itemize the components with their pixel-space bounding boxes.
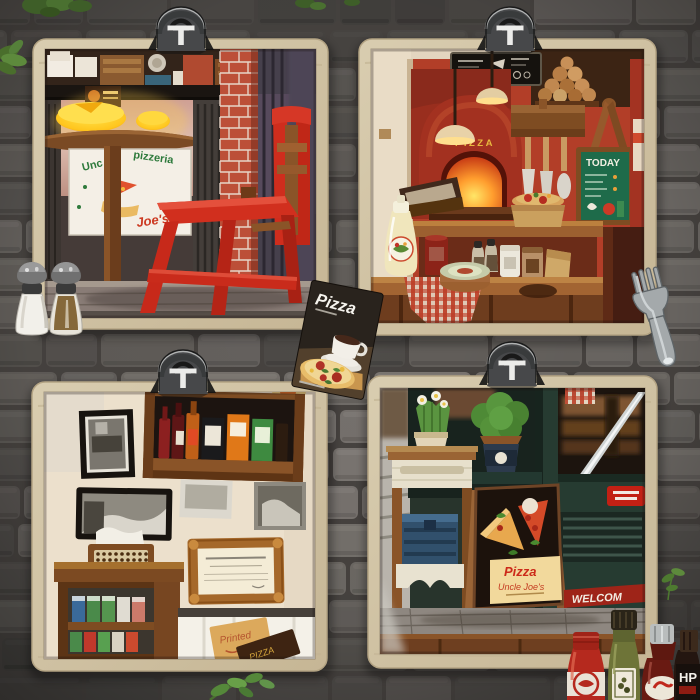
svg-text:HP: HP	[679, 670, 697, 685]
svg-text:TODAY: TODAY	[586, 158, 620, 169]
svg-text:Pizza: Pizza	[504, 564, 537, 579]
svg-text:Uncle Joe's: Uncle Joe's	[498, 582, 545, 592]
